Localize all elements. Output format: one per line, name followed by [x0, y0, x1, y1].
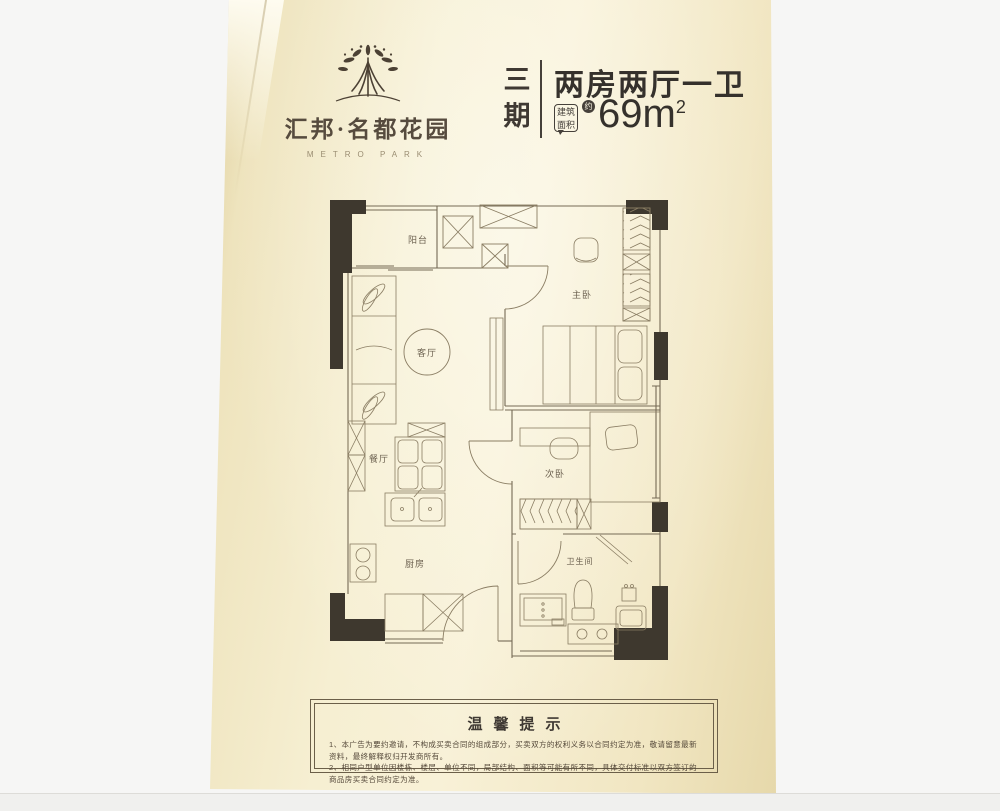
bathroom-counter	[568, 624, 618, 644]
structural-pillars	[330, 200, 668, 660]
kitchen-sink-counter	[385, 488, 445, 526]
phase-label: 三期	[502, 62, 532, 134]
master-bed	[543, 326, 647, 404]
brand-logo-block: 汇邦·名都花园 METRO PARK	[250, 44, 486, 159]
master-wardrobe	[623, 208, 650, 321]
room-label-dining: 餐厅	[369, 453, 389, 464]
bottom-strip	[0, 793, 1000, 811]
dining-set	[395, 423, 445, 491]
tips-box: 温馨提示 1、本广告为要约邀请，不构成买卖合同的组成部分，买卖双方的权利义务以合…	[310, 699, 718, 773]
area-label-bubble: 建筑 面积	[554, 104, 578, 132]
room-label-bathroom: 卫生间	[567, 556, 594, 566]
tips-line-1: 1、本广告为要约邀请，不构成买卖合同的组成部分，买卖双方的权利义务以合同约定为准…	[329, 739, 699, 762]
tips-title: 温馨提示	[315, 713, 713, 734]
room-label-balcony: 阳台	[408, 234, 428, 245]
poster-stage: 汇邦·名都花园 METRO PARK 三期 两房两厅一卫 建筑 面积 约 69m…	[0, 0, 1000, 810]
poster-paper: 汇邦·名都花园 METRO PARK 三期 两房两厅一卫 建筑 面积 约 69m…	[210, 0, 776, 810]
sofa-and-plants	[352, 276, 396, 424]
brand-name-en: METRO PARK	[250, 150, 486, 159]
second-bed	[590, 412, 660, 502]
area-label-line1: 建筑	[555, 106, 577, 119]
floorplan: 阳台 客厅 主卧 餐厅 次卧 厨房 卫生间	[330, 196, 670, 666]
toilet	[572, 580, 594, 620]
bathroom-vanity	[520, 594, 566, 626]
room-label-second-bedroom: 次卧	[545, 468, 565, 479]
dining-cabinet	[348, 421, 365, 491]
shaft-boxes	[443, 205, 537, 268]
area-value: 69m2	[598, 92, 686, 137]
floorplan-drawing: 阳台 客厅 主卧 餐厅 次卧 厨房 卫生间	[330, 196, 670, 666]
second-wardrobe	[520, 499, 591, 529]
area-superscript: 2	[676, 97, 686, 117]
shower-area	[596, 535, 646, 630]
phase-divider	[540, 60, 542, 138]
tips-box-inner-border: 温馨提示 1、本广告为要约邀请，不构成买卖合同的组成部分，买卖双方的权利义务以合…	[314, 703, 714, 769]
desk-and-chair	[520, 428, 590, 459]
room-label-living: 客厅	[417, 347, 437, 358]
door-arcs	[443, 266, 561, 641]
walls	[348, 206, 660, 658]
area-label-line2: 面积	[555, 119, 577, 132]
tips-line-2: 2、相同户型单位因楼栋、楼层、单位不同，局部结构、面积等可能有所不同，具体交付标…	[329, 762, 699, 785]
brand-name-cn: 汇邦·名都花园	[250, 110, 486, 144]
area-approx-badge: 约	[582, 100, 595, 113]
tree-logo-icon	[328, 44, 408, 108]
room-label-kitchen: 厨房	[405, 558, 425, 569]
kitchen-stove	[350, 544, 376, 582]
master-chair	[574, 238, 598, 262]
room-label-master-bedroom: 主卧	[572, 289, 592, 300]
tv-cabinet	[490, 318, 503, 410]
